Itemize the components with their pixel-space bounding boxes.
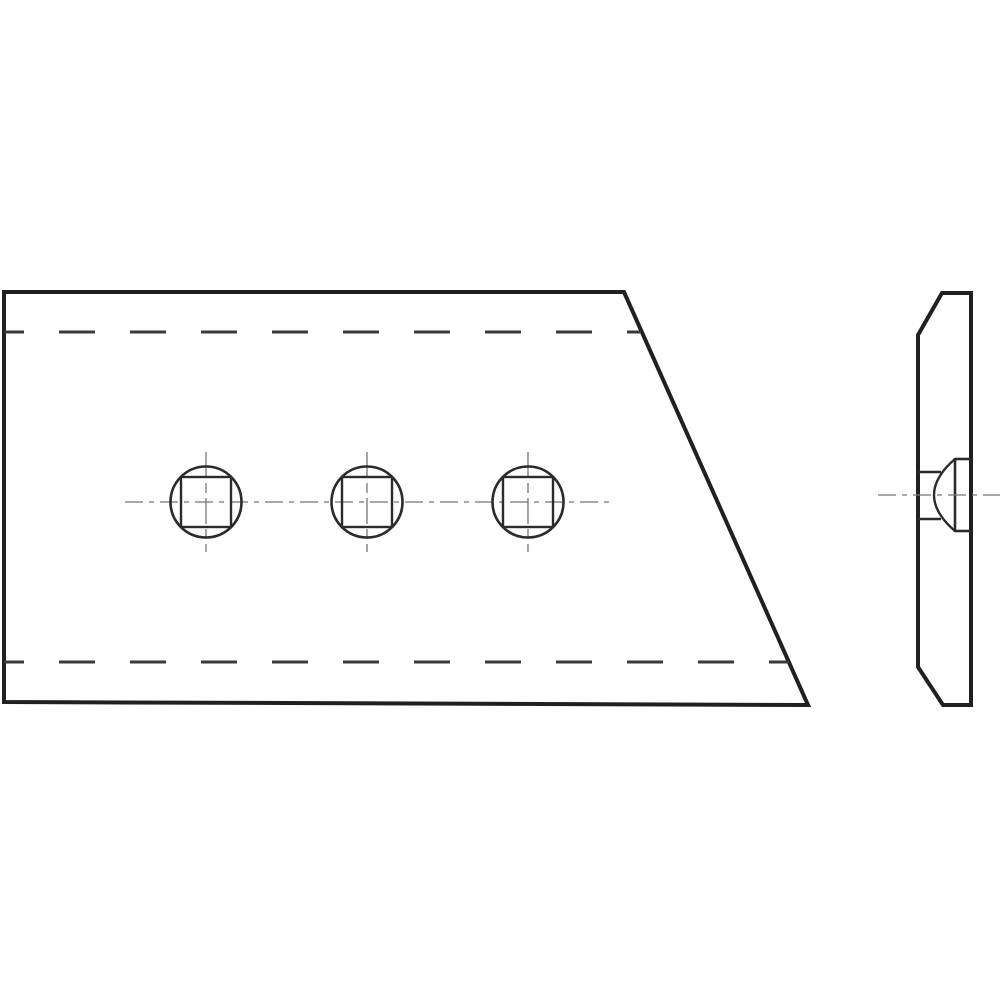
front-view-outline: [4, 292, 808, 705]
technical-drawing-page: [0, 0, 1000, 1000]
side-view-outline: [918, 293, 971, 705]
technical-drawing-svg: [0, 0, 1000, 1000]
